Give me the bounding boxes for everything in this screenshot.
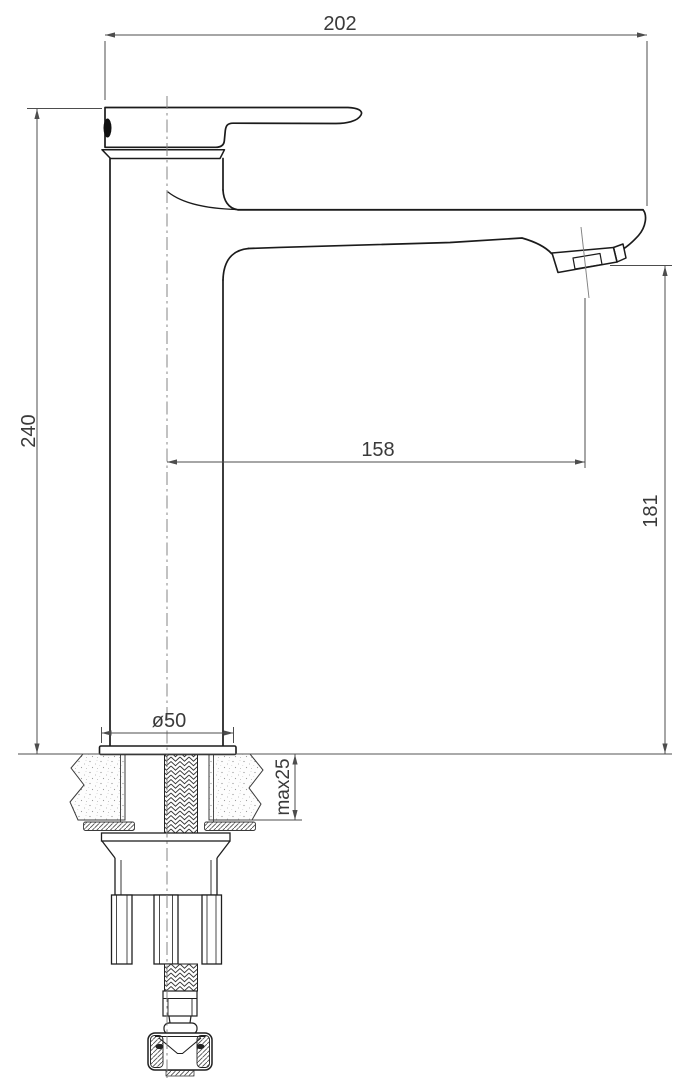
dim-base-diameter-label: ø50 [152,710,186,732]
technical-drawing-canvas: 202 240 158 181 ø50 [0,0,693,1080]
washer-left [84,822,135,831]
washer-right [205,822,256,831]
dim-spout-reach-label: 158 [361,439,394,461]
faucet-dimension-drawing: 202 240 158 181 ø50 [0,0,693,1080]
mounting-flange-plate [102,833,231,841]
dim-spout-height-label: 181 [640,494,662,527]
base-flange [100,746,237,755]
hose-nut-seal-right [197,1044,205,1049]
hose-break-symbol [166,1071,194,1077]
dim-max-thickness-label: max25 [273,758,294,815]
threaded-shank [165,755,198,834]
braided-hose [165,964,198,991]
hose-nut-seal-left [156,1044,164,1049]
handle-indicator-dot [104,119,112,138]
dim-overall-height-label: 240 [18,414,40,447]
drawing-background [0,0,693,1080]
dim-overall-length-label: 202 [323,13,356,35]
mounting-nut-ribbed-columns [112,895,222,964]
